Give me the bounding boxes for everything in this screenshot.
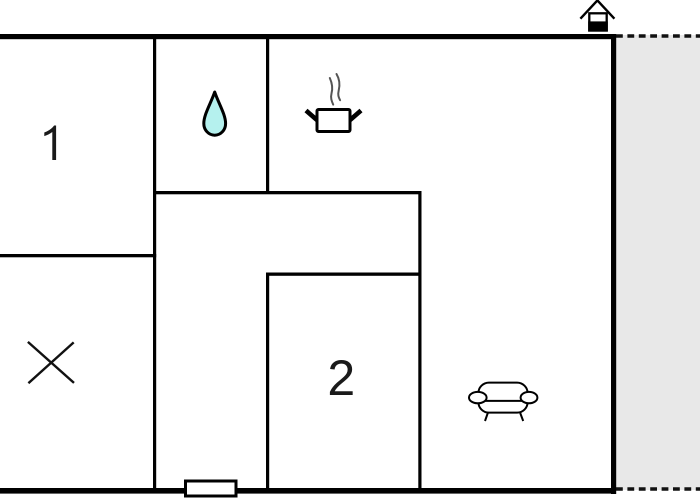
svg-text:2: 2 xyxy=(327,350,355,406)
